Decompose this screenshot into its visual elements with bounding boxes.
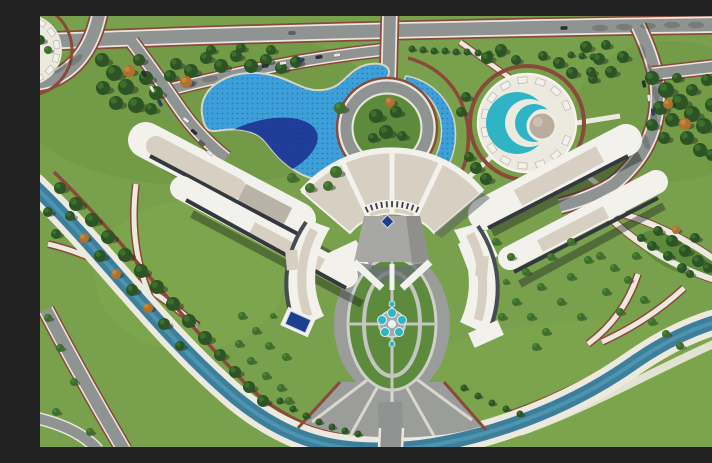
tree bbox=[198, 331, 212, 345]
tree bbox=[52, 408, 60, 416]
tree-highlight bbox=[558, 299, 562, 303]
tree-highlight bbox=[633, 253, 637, 257]
car bbox=[261, 64, 268, 68]
tree bbox=[262, 372, 270, 380]
tree bbox=[43, 207, 53, 217]
tree bbox=[637, 234, 645, 242]
tree bbox=[503, 406, 510, 413]
tree bbox=[517, 411, 524, 418]
tree-highlight bbox=[111, 98, 117, 104]
dome-pavilion bbox=[528, 112, 556, 140]
tree-highlight bbox=[567, 68, 572, 73]
tree-highlight bbox=[398, 132, 403, 137]
tree-highlight bbox=[698, 120, 705, 127]
tree bbox=[527, 313, 535, 321]
tree-highlight bbox=[655, 103, 661, 109]
tree bbox=[170, 58, 182, 70]
tree-highlight bbox=[215, 350, 220, 355]
car bbox=[651, 108, 655, 115]
tree-highlight bbox=[660, 84, 667, 91]
tree-highlight bbox=[638, 235, 642, 239]
tree-highlight bbox=[581, 42, 586, 47]
tree bbox=[498, 313, 506, 321]
tree bbox=[648, 318, 656, 326]
tree bbox=[238, 312, 246, 320]
tree bbox=[679, 118, 691, 130]
tree-highlight bbox=[103, 232, 109, 238]
tree-highlight bbox=[130, 99, 137, 106]
tree-highlight bbox=[371, 111, 377, 117]
tree bbox=[624, 276, 632, 284]
tree bbox=[672, 226, 680, 234]
tree bbox=[118, 248, 132, 262]
tree-highlight bbox=[499, 314, 503, 318]
tree bbox=[329, 424, 336, 431]
tree bbox=[617, 51, 629, 63]
tree-highlight bbox=[687, 271, 691, 275]
tree-highlight bbox=[171, 59, 176, 64]
tree-highlight bbox=[386, 98, 391, 103]
tree bbox=[247, 357, 255, 365]
tree-highlight bbox=[216, 61, 222, 67]
tree-highlight bbox=[57, 345, 61, 349]
tree-highlight bbox=[538, 284, 542, 288]
tree bbox=[70, 378, 78, 386]
tree-highlight bbox=[431, 48, 434, 51]
tree bbox=[663, 251, 673, 261]
tree-highlight bbox=[236, 341, 240, 345]
tree-highlight bbox=[702, 75, 707, 80]
tree-highlight bbox=[508, 254, 512, 258]
tree bbox=[616, 308, 624, 316]
road-shadow bbox=[616, 24, 632, 30]
road-shadow bbox=[640, 23, 656, 29]
tree bbox=[277, 384, 285, 392]
tree bbox=[54, 182, 66, 194]
car bbox=[289, 31, 296, 34]
tree-highlight bbox=[181, 77, 186, 82]
tree-highlight bbox=[606, 67, 611, 72]
tree bbox=[355, 431, 362, 438]
car bbox=[333, 53, 340, 57]
tree bbox=[456, 107, 466, 117]
tree bbox=[453, 49, 460, 56]
tree bbox=[580, 41, 592, 53]
tree-highlight bbox=[649, 319, 653, 323]
tree bbox=[184, 64, 198, 78]
tree-highlight bbox=[124, 66, 129, 71]
tree-highlight bbox=[663, 331, 667, 335]
tree-highlight bbox=[528, 314, 532, 318]
tree-highlight bbox=[674, 96, 681, 103]
tree bbox=[420, 47, 427, 54]
tree bbox=[538, 51, 548, 61]
tree bbox=[128, 97, 144, 113]
tree-highlight bbox=[664, 100, 669, 105]
tree-highlight bbox=[261, 55, 266, 60]
tree bbox=[537, 283, 545, 291]
tree bbox=[470, 162, 482, 174]
tree-highlight bbox=[266, 343, 270, 347]
tree-highlight bbox=[146, 104, 151, 109]
tree-highlight bbox=[45, 47, 49, 51]
tree-highlight bbox=[504, 280, 507, 283]
tree-highlight bbox=[239, 313, 243, 317]
tree bbox=[542, 328, 550, 336]
tree-highlight bbox=[512, 56, 517, 61]
tree-highlight bbox=[442, 48, 445, 51]
tree bbox=[236, 43, 246, 53]
road-shadow bbox=[664, 22, 680, 28]
tree bbox=[492, 238, 500, 246]
tree-highlight bbox=[611, 265, 615, 269]
tree-highlight bbox=[291, 57, 296, 62]
tree bbox=[692, 255, 704, 267]
tree-highlight bbox=[290, 406, 293, 409]
pavilion bbox=[518, 77, 528, 84]
tree bbox=[51, 229, 61, 239]
tree bbox=[568, 52, 575, 59]
tree-highlight bbox=[271, 314, 274, 317]
tree bbox=[653, 226, 663, 236]
tree bbox=[111, 269, 121, 279]
tree bbox=[287, 173, 297, 183]
tree bbox=[553, 57, 565, 69]
tree-highlight bbox=[53, 409, 57, 413]
tree bbox=[257, 395, 269, 407]
tree bbox=[461, 385, 468, 392]
tree bbox=[475, 50, 482, 57]
tree-highlight bbox=[136, 266, 142, 272]
tree-highlight bbox=[457, 108, 462, 113]
tree-highlight bbox=[578, 314, 582, 318]
tree bbox=[696, 118, 712, 134]
tree-highlight bbox=[87, 215, 93, 221]
tree-highlight bbox=[267, 46, 272, 51]
tree-highlight bbox=[159, 319, 164, 324]
tree bbox=[368, 133, 378, 143]
tree bbox=[330, 166, 342, 178]
tree bbox=[285, 397, 293, 405]
tree bbox=[586, 67, 596, 77]
tree bbox=[385, 97, 395, 107]
tree bbox=[94, 250, 106, 262]
tree bbox=[686, 84, 698, 96]
tree-highlight bbox=[648, 242, 653, 247]
tree bbox=[166, 297, 180, 311]
pavilion bbox=[53, 40, 60, 49]
tree bbox=[175, 341, 185, 351]
tree-highlight bbox=[647, 73, 653, 79]
tree-highlight bbox=[539, 52, 544, 57]
tree bbox=[252, 327, 260, 335]
tree bbox=[290, 56, 302, 68]
tree-highlight bbox=[391, 107, 396, 112]
tree bbox=[139, 71, 153, 85]
tree-highlight bbox=[306, 184, 311, 189]
tree-highlight bbox=[647, 120, 652, 125]
tree bbox=[567, 238, 575, 246]
tree bbox=[133, 54, 145, 66]
tree-highlight bbox=[465, 153, 470, 158]
tree-highlight bbox=[625, 277, 629, 281]
tree-highlight bbox=[71, 199, 77, 205]
tree-highlight bbox=[641, 297, 645, 301]
tree-highlight bbox=[127, 285, 132, 290]
car bbox=[315, 55, 322, 59]
tree-highlight bbox=[597, 253, 601, 257]
tree bbox=[270, 313, 276, 319]
tree-highlight bbox=[335, 103, 340, 108]
tree-highlight bbox=[253, 328, 257, 332]
tree bbox=[690, 233, 700, 243]
tree bbox=[464, 152, 474, 162]
aerial-render: Aerial master-plan rendering of a cresce… bbox=[40, 16, 712, 447]
tree-highlight bbox=[207, 46, 212, 51]
tree bbox=[461, 92, 471, 102]
tree bbox=[579, 53, 586, 60]
tree-highlight bbox=[324, 182, 329, 187]
tree-highlight bbox=[369, 134, 374, 139]
tree bbox=[243, 381, 255, 393]
tree bbox=[106, 65, 122, 81]
tree bbox=[442, 48, 449, 55]
tree-highlight bbox=[45, 315, 49, 319]
tree-highlight bbox=[120, 250, 126, 256]
tree bbox=[229, 366, 241, 378]
left-arm-block bbox=[285, 250, 299, 271]
tree-highlight bbox=[667, 236, 672, 241]
tree-highlight bbox=[152, 282, 158, 288]
tree-highlight bbox=[288, 174, 293, 179]
tree-highlight bbox=[664, 252, 669, 256]
tree-highlight bbox=[381, 127, 387, 133]
tree-highlight bbox=[687, 85, 692, 90]
tree bbox=[134, 264, 148, 278]
tree-highlight bbox=[184, 316, 190, 322]
tree bbox=[686, 270, 694, 278]
tree bbox=[647, 241, 657, 251]
tree-highlight bbox=[55, 183, 60, 188]
car bbox=[561, 26, 568, 30]
tree bbox=[512, 298, 520, 306]
tree bbox=[214, 349, 226, 361]
tree bbox=[145, 103, 157, 115]
tree bbox=[290, 406, 297, 413]
tree-highlight bbox=[258, 396, 263, 401]
tree-highlight bbox=[695, 145, 701, 151]
tree-highlight bbox=[617, 309, 621, 313]
tree bbox=[303, 413, 310, 420]
tree-highlight bbox=[200, 333, 206, 339]
tree-highlight bbox=[329, 424, 332, 427]
tree-highlight bbox=[659, 133, 664, 138]
tree bbox=[86, 428, 94, 436]
canal-bridge bbox=[379, 402, 403, 447]
tree bbox=[235, 340, 243, 348]
tree-highlight bbox=[201, 53, 206, 58]
tree-highlight bbox=[517, 411, 520, 414]
tree-highlight bbox=[594, 54, 599, 59]
tree-highlight bbox=[680, 246, 685, 251]
tree-highlight bbox=[680, 119, 685, 124]
tree bbox=[610, 264, 618, 272]
tree bbox=[214, 59, 228, 73]
tree bbox=[507, 253, 515, 261]
tree bbox=[495, 44, 507, 56]
tree bbox=[679, 245, 691, 257]
tree bbox=[602, 288, 610, 296]
tree-highlight bbox=[682, 133, 688, 139]
tree bbox=[164, 70, 176, 82]
tree bbox=[489, 400, 496, 407]
road-shadow bbox=[592, 25, 608, 31]
tree bbox=[143, 303, 153, 313]
tree-highlight bbox=[165, 71, 170, 76]
tree-highlight bbox=[667, 115, 673, 121]
tree bbox=[605, 66, 617, 78]
tree bbox=[342, 428, 349, 435]
tree-highlight bbox=[568, 52, 571, 55]
tree bbox=[56, 344, 64, 352]
tree-highlight bbox=[331, 167, 336, 172]
tree-highlight bbox=[482, 53, 487, 58]
tree-highlight bbox=[493, 239, 497, 243]
tree-highlight bbox=[568, 239, 572, 243]
tree bbox=[646, 119, 658, 131]
tree-highlight bbox=[475, 50, 478, 53]
tree bbox=[663, 99, 673, 109]
tree-highlight bbox=[97, 55, 103, 61]
tree bbox=[266, 45, 276, 55]
tree bbox=[305, 183, 315, 193]
tree-highlight bbox=[186, 66, 192, 72]
tree bbox=[334, 102, 346, 114]
tree bbox=[481, 52, 493, 64]
tree-highlight bbox=[462, 93, 467, 98]
tree-highlight bbox=[693, 256, 698, 261]
tree-highlight bbox=[481, 174, 486, 179]
tree bbox=[532, 343, 540, 351]
tree-highlight bbox=[464, 49, 467, 52]
tree bbox=[503, 279, 509, 285]
tree-highlight bbox=[461, 385, 464, 388]
tree bbox=[662, 330, 670, 338]
masterplan-svg bbox=[40, 16, 712, 447]
tree-highlight bbox=[691, 234, 696, 239]
tree bbox=[464, 49, 471, 56]
tree-highlight bbox=[263, 373, 267, 377]
tree bbox=[566, 67, 578, 79]
tree bbox=[658, 132, 670, 144]
tree-highlight bbox=[71, 379, 75, 383]
tree-highlight bbox=[677, 343, 681, 347]
tree-highlight bbox=[283, 354, 287, 358]
tree bbox=[244, 59, 258, 73]
tree-highlight bbox=[554, 58, 559, 63]
tree-highlight bbox=[453, 49, 456, 52]
tree bbox=[65, 211, 75, 221]
tree bbox=[584, 256, 592, 264]
tree bbox=[658, 82, 674, 98]
tree-highlight bbox=[678, 264, 683, 269]
tree bbox=[379, 125, 393, 139]
tree bbox=[640, 296, 648, 304]
tree bbox=[158, 318, 170, 330]
tree-highlight bbox=[66, 212, 71, 217]
road-shadow bbox=[688, 22, 704, 28]
pavilion bbox=[518, 162, 528, 169]
tree-highlight bbox=[618, 52, 623, 57]
tree-highlight bbox=[108, 67, 115, 74]
tree bbox=[693, 143, 707, 157]
tree bbox=[577, 313, 585, 321]
tree-highlight bbox=[420, 47, 423, 50]
tree bbox=[44, 314, 52, 322]
tree-highlight bbox=[230, 367, 235, 372]
tree bbox=[409, 46, 416, 53]
tree-highlight bbox=[496, 45, 501, 50]
tree-highlight bbox=[585, 257, 589, 261]
tree bbox=[596, 252, 604, 260]
right-arm-block bbox=[475, 256, 489, 277]
tree-highlight bbox=[144, 304, 149, 309]
tree-highlight bbox=[176, 342, 181, 347]
tree-highlight bbox=[168, 299, 174, 305]
tree-highlight bbox=[248, 358, 252, 362]
tree bbox=[96, 81, 110, 95]
tree bbox=[101, 230, 115, 244]
tree bbox=[522, 268, 530, 276]
tree-highlight bbox=[475, 393, 478, 396]
tree bbox=[676, 342, 684, 350]
tree bbox=[182, 314, 196, 328]
tree-highlight bbox=[543, 329, 547, 333]
tree bbox=[672, 73, 682, 83]
tree-highlight bbox=[513, 299, 517, 303]
tree-highlight bbox=[603, 289, 607, 293]
tree-highlight bbox=[278, 385, 282, 389]
tree-highlight bbox=[246, 61, 252, 67]
tree-highlight bbox=[316, 419, 319, 422]
tree bbox=[265, 342, 273, 350]
tree bbox=[632, 252, 640, 260]
tree bbox=[277, 398, 284, 405]
tree bbox=[323, 181, 333, 191]
tree-highlight bbox=[704, 264, 709, 269]
tree bbox=[665, 113, 679, 127]
tree-highlight bbox=[523, 269, 527, 273]
tree bbox=[282, 353, 290, 361]
tree-highlight bbox=[120, 81, 127, 88]
tree-highlight bbox=[673, 227, 677, 231]
tree-highlight bbox=[231, 51, 236, 56]
tree-highlight bbox=[548, 254, 552, 258]
tree bbox=[480, 173, 492, 185]
tree-highlight bbox=[52, 230, 57, 235]
car bbox=[279, 61, 286, 65]
tree bbox=[369, 109, 383, 123]
tree bbox=[95, 53, 109, 67]
tree-highlight bbox=[590, 54, 593, 57]
tree-highlight bbox=[409, 46, 412, 49]
tree-highlight bbox=[95, 251, 100, 256]
tree-highlight bbox=[244, 382, 249, 387]
tree-highlight bbox=[277, 398, 280, 401]
tree bbox=[118, 79, 134, 95]
tree bbox=[206, 45, 216, 55]
dome-highlight bbox=[533, 117, 543, 127]
